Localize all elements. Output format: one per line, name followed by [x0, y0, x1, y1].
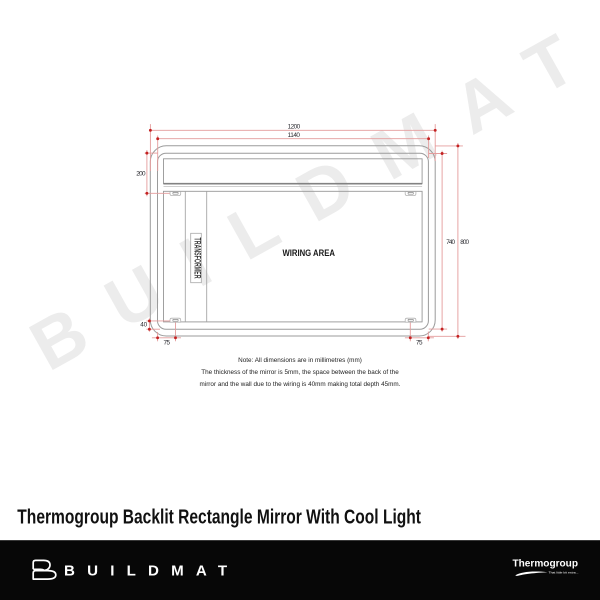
svg-text:75: 75	[164, 339, 171, 346]
svg-text:That little bit extra...: That little bit extra...	[549, 570, 579, 574]
svg-text:740: 740	[446, 239, 455, 246]
svg-text:mirror and the wall due to the: mirror and the wall due to the wiring is…	[200, 381, 401, 388]
svg-text:The thickness of the mirror is: The thickness of the mirror is 5mm, the …	[201, 369, 399, 376]
svg-text:800: 800	[460, 239, 469, 246]
svg-text:75: 75	[416, 339, 423, 346]
svg-text:BUILDMAT: BUILDMAT	[64, 562, 239, 579]
svg-text:Thermogroup Backlit Rectangle: Thermogroup Backlit Rectangle Mirror Wit…	[17, 507, 421, 529]
svg-text:1200: 1200	[288, 124, 301, 131]
svg-text:40: 40	[140, 322, 147, 329]
svg-text:200: 200	[136, 171, 146, 178]
svg-text:Note: All dimensions are in mi: Note: All dimensions are in millimetres …	[238, 357, 362, 364]
svg-text:Thermogroup: Thermogroup	[513, 559, 579, 570]
svg-text:WIRING AREA: WIRING AREA	[282, 247, 335, 258]
svg-text:1140: 1140	[288, 132, 301, 139]
svg-text:TRANSFORMER: TRANSFORMER	[192, 238, 202, 279]
